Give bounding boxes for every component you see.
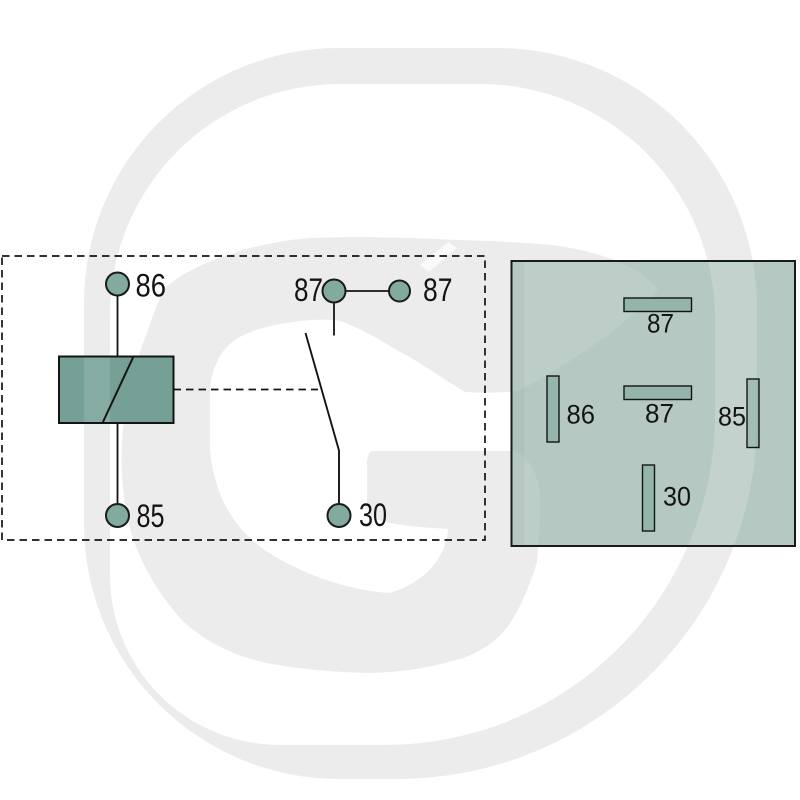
- svg-text:87: 87: [645, 399, 674, 429]
- svg-text:87: 87: [647, 309, 674, 339]
- svg-text:87: 87: [423, 272, 453, 308]
- svg-text:86: 86: [567, 400, 596, 430]
- svg-text:87: 87: [294, 272, 323, 308]
- svg-text:86: 86: [136, 268, 167, 304]
- svg-text:85: 85: [137, 498, 165, 534]
- svg-text:30: 30: [359, 497, 387, 533]
- svg-text:85: 85: [718, 402, 746, 432]
- svg-text:30: 30: [663, 482, 691, 512]
